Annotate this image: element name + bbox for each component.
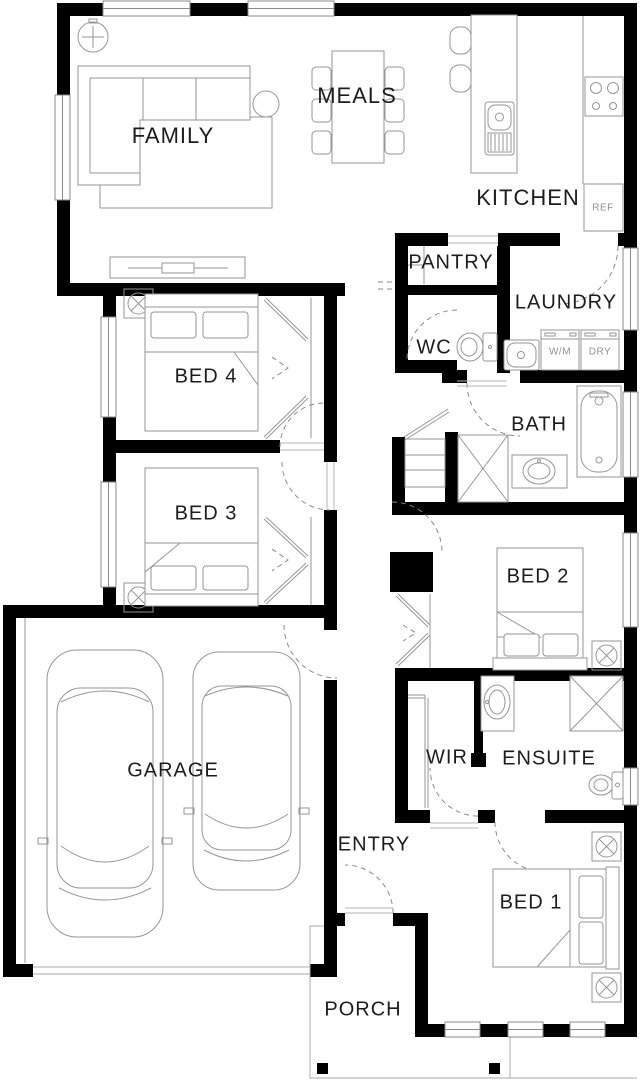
garage-door [33,967,310,974]
bath-fixtures [458,386,621,502]
room-label-meals: MEALS [317,83,397,109]
laundry-tub [504,340,539,370]
window [101,482,116,587]
window [623,533,638,627]
window [623,248,638,330]
bed4-door-arc [280,403,324,447]
kitchen-sink [485,102,514,155]
vanity-basin [512,455,567,488]
room-label-bed1: BED 1 [500,892,563,915]
wir-door-arc [430,768,478,816]
room-label-ensuite: ENSUITE [502,748,596,771]
ceiling-fan-icon [592,832,621,861]
porch-post [489,1063,500,1074]
room-label-bed4: BED 4 [175,366,238,389]
side-table [253,91,279,117]
room-label-wir: WIR [426,747,468,770]
window [101,317,116,417]
stool [450,27,471,54]
ensuite-basin [481,676,514,731]
bed3-door-arc [282,462,330,510]
window [623,392,638,477]
window [570,1022,605,1037]
bathtub [577,386,621,477]
room-label-bed2: BED 2 [507,566,570,589]
tv-unit [110,257,245,278]
bed [493,867,619,969]
bed [145,468,258,606]
label-dry: DRY [589,347,611,358]
bed1-furniture [493,832,621,1002]
ensuite-fixtures [481,676,623,799]
room-label-kitchen: KITCHEN [476,185,580,211]
ceiling-light-icon [78,19,108,52]
window [248,1,334,16]
robe-bifold-doors [264,517,311,605]
window [103,1,190,16]
room-label-bath: BATH [511,414,567,437]
room-label-laundry: LAUNDRY [515,292,617,315]
ensuite-toilet [589,772,623,799]
floor-plan-page: FAMILY MEALS KITCHEN PANTRY LAUNDRY WC B… [0,0,640,1083]
room-label-pantry: PANTRY [408,252,493,275]
window [623,768,638,805]
label-ref: REF [592,203,614,214]
room-label-bed3: BED 3 [175,503,238,526]
room-label-wc: WC [416,337,451,360]
hall-door-arc [495,822,545,872]
chair [312,131,331,154]
robe-bifold-doors [396,594,430,668]
stool [450,65,471,92]
window [508,1022,543,1037]
garage-contents [25,618,310,974]
room-label-porch: PORCH [324,999,401,1022]
ceiling-fan-icon [592,973,621,1002]
wir-shelves [408,695,428,808]
ensuite-shower [570,676,623,731]
room-label-family: FAMILY [132,123,215,149]
bed4-furniture [124,289,311,439]
robe-bifold-doors [264,298,311,439]
bed3-furniture [124,468,311,612]
ceiling-fan-icon [592,641,621,670]
bed [145,294,258,431]
room-label-entry: ENTRY [338,834,410,857]
chair [385,131,404,154]
wc-toilet [457,333,497,361]
label-wm: W/M [549,347,571,358]
window [55,95,70,200]
linen-cupboard [404,409,449,487]
window [445,1022,480,1037]
front-door-arc [345,865,393,913]
cooktop-icon [585,77,623,116]
car-large [38,650,172,937]
floor-plan-drawing [0,0,640,1083]
porch-post [317,1063,328,1074]
garage-door-arc [284,625,337,678]
shower [458,435,508,502]
room-label-garage: GARAGE [127,760,219,783]
